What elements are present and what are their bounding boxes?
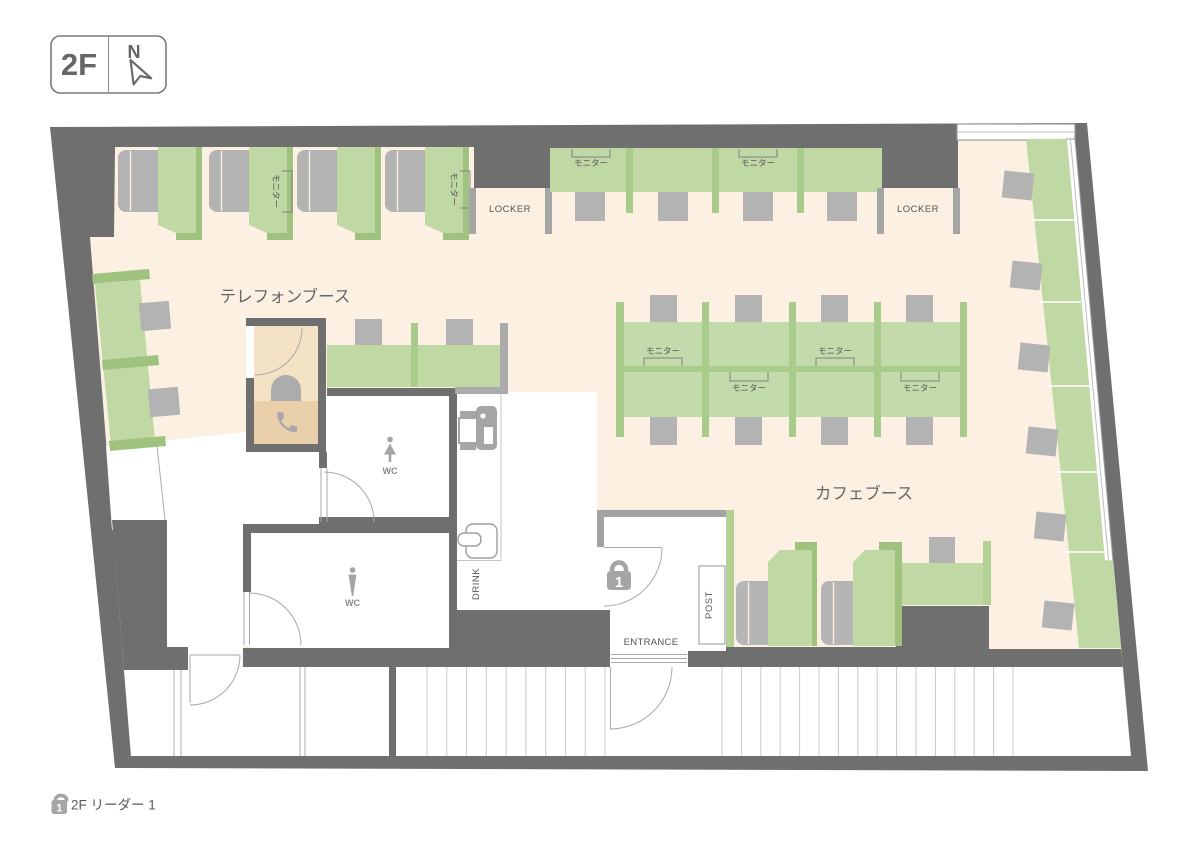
svg-text:1: 1 (56, 803, 62, 815)
svg-text:ENTRANCE: ENTRANCE (624, 637, 679, 648)
svg-text:モニター: モニター (818, 346, 852, 356)
svg-text:モニター: モニター (449, 172, 459, 206)
svg-text:N: N (128, 42, 141, 62)
svg-text:1: 1 (615, 574, 623, 591)
svg-text:DRINK: DRINK (471, 568, 482, 600)
svg-text:POST: POST (704, 591, 715, 619)
svg-text:WC: WC (383, 466, 398, 476)
svg-text:2F リーダー 1: 2F リーダー 1 (71, 798, 156, 813)
svg-text:モニター: モニター (646, 346, 680, 356)
svg-text:テレフォンブース: テレフォンブース (220, 286, 351, 306)
svg-text:カフェブース: カフェブース (815, 483, 913, 503)
svg-text:LOCKER: LOCKER (489, 204, 531, 215)
svg-text:LOCKER: LOCKER (897, 204, 939, 215)
svg-text:WC: WC (345, 598, 360, 608)
svg-text:モニター: モニター (903, 383, 937, 393)
svg-text:2F: 2F (61, 47, 97, 82)
svg-text:モニター: モニター (574, 158, 608, 168)
svg-text:モニター: モニター (732, 383, 766, 393)
svg-text:モニター: モニター (741, 158, 775, 168)
svg-text:モニター: モニター (271, 174, 281, 208)
